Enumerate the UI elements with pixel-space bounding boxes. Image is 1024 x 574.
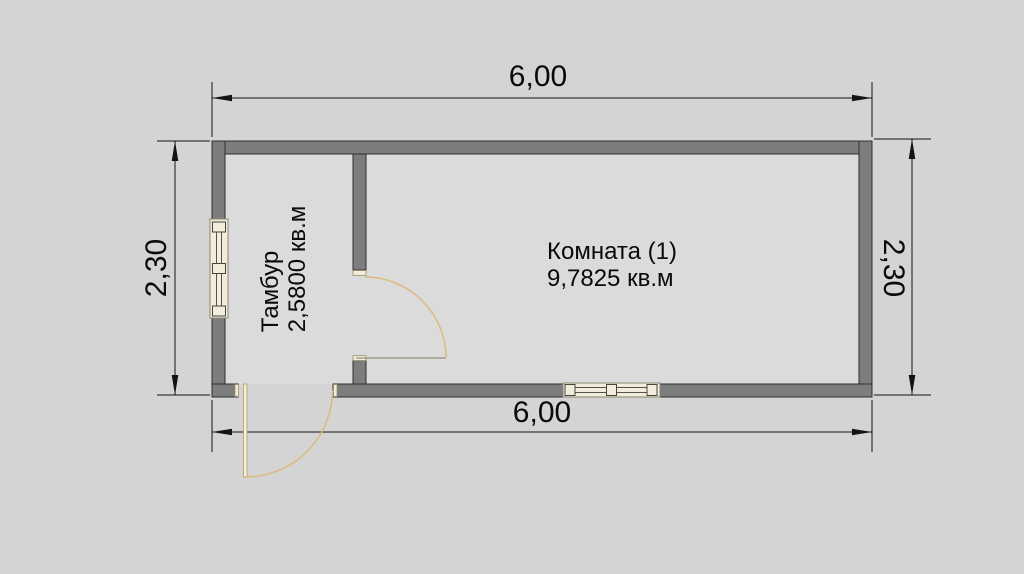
- wall-right: [859, 141, 872, 397]
- arrow-right-bottom: [909, 375, 916, 395]
- room-name-tambour: Тамбур: [257, 206, 284, 333]
- window-left: [210, 219, 228, 318]
- window-left-mullion-top: [213, 222, 226, 232]
- window-left-mullion-middle: [213, 264, 226, 274]
- partition-upper: [353, 154, 366, 270]
- room-label-tambour: Тамбур 2,5800 кв.м: [257, 206, 311, 333]
- room-area-komnata-1: 9,7825 кв.м: [547, 265, 677, 292]
- room-label-komnata-1: Комната (1) 9,7825 кв.м: [547, 238, 677, 292]
- arrow-bottom-left: [212, 429, 232, 436]
- door-entry-swing-arc: [246, 390, 333, 477]
- jamb-cap-entry-right: [334, 385, 338, 397]
- dimension-text-top: 6,00: [509, 62, 567, 92]
- interior-floor: [225, 154, 859, 384]
- wall-bottom-left-stub: [212, 384, 238, 397]
- wall-top: [212, 141, 872, 154]
- arrow-top-right: [852, 95, 872, 102]
- room-area-tambour: 2,5800 кв.м: [284, 206, 311, 333]
- window-bottom: [563, 383, 660, 397]
- room-name-komnata-1: Комната (1): [547, 238, 677, 265]
- door-entry: [244, 384, 333, 477]
- window-left-mullion-bottom: [213, 306, 226, 316]
- jamb-cap-partition-end: [353, 271, 366, 276]
- jamb-cap-entry-left: [235, 385, 239, 397]
- window-bottom-mullion-right: [647, 385, 657, 396]
- dimension-text-left: 2,30: [142, 239, 172, 297]
- window-bottom-mullion-center: [607, 385, 617, 396]
- door-entry-leaf: [244, 384, 248, 477]
- window-bottom-mullion-left: [565, 385, 575, 396]
- dimension-text-bottom: 6,00: [513, 398, 571, 428]
- arrow-left-top: [172, 141, 179, 161]
- arrow-bottom-right: [852, 429, 872, 436]
- wall-left-upper: [212, 141, 225, 219]
- floor-plan-canvas: 6,00 6,00 2,30 2,30 Тамбур 2,5800 кв.м К…: [0, 0, 1024, 574]
- dimension-text-right: 2,30: [878, 239, 908, 297]
- arrow-right-top: [909, 139, 916, 159]
- arrow-left-bottom: [172, 375, 179, 395]
- arrow-top-left: [212, 95, 232, 102]
- partition-stub: [353, 360, 366, 384]
- wall-bottom-right: [660, 384, 872, 397]
